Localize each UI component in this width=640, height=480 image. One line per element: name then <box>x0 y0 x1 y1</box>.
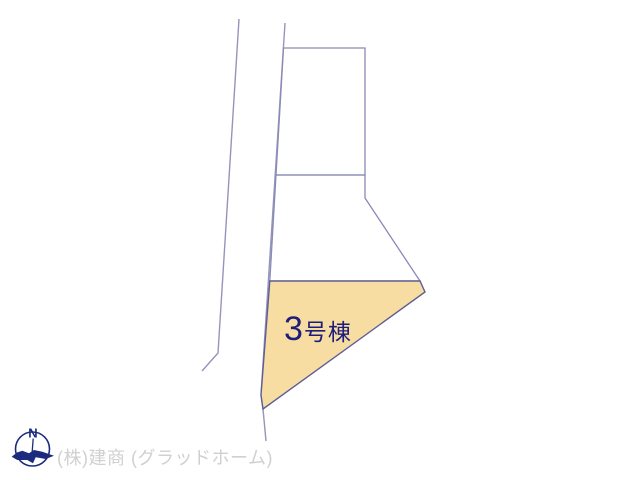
compass-north-label: N <box>28 426 37 441</box>
building-label-suffix: 号棟 <box>304 319 352 345</box>
site-plan-diagram: 3号棟 N (株)建商 (グラッドホーム) <box>0 0 640 480</box>
footer-company-text: (株)建商 (グラッドホーム) <box>57 448 273 468</box>
plan-linework <box>0 0 640 480</box>
compass-bird-shape <box>12 450 54 463</box>
plot-outline-top <box>276 48 365 175</box>
building-label: 3号棟 <box>284 312 352 353</box>
building-label-number: 3 <box>284 310 304 348</box>
road-line-left <box>202 19 239 371</box>
north-compass-icon: N <box>11 423 57 473</box>
plot-outline-middle <box>270 175 420 281</box>
